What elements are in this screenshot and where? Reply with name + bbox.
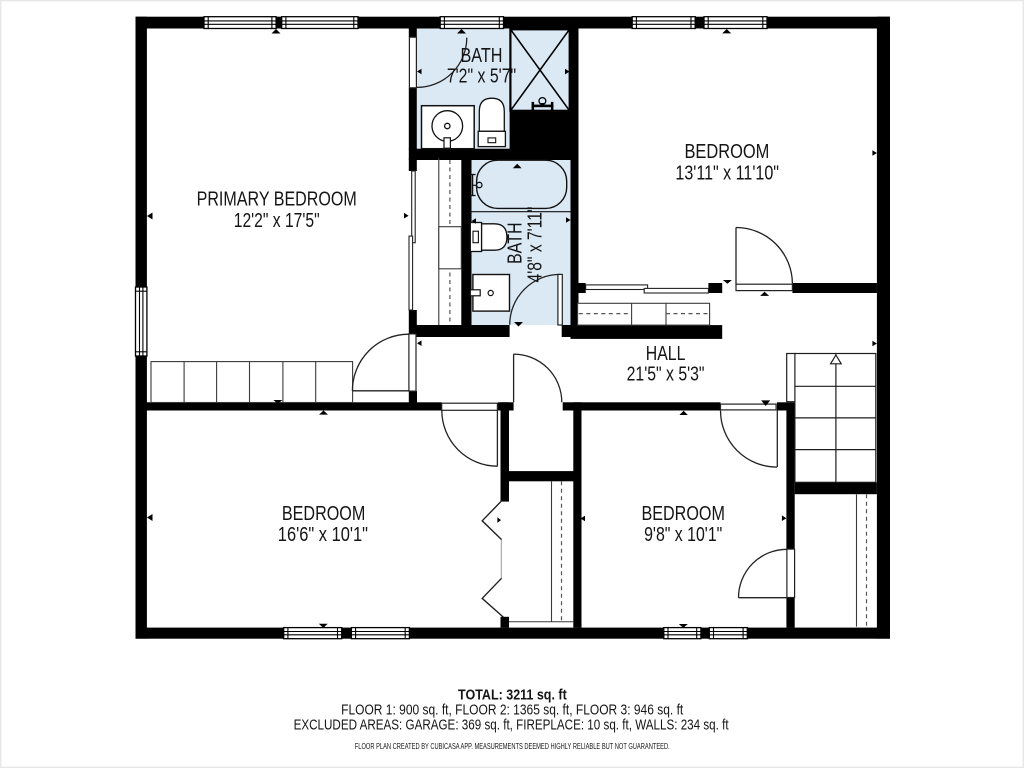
svg-text:BEDROOM: BEDROOM bbox=[282, 503, 365, 525]
svg-text:7'2" x 5'7": 7'2" x 5'7" bbox=[447, 65, 516, 87]
svg-text:BATH: BATH bbox=[504, 222, 526, 264]
svg-text:PRIMARY BEDROOM: PRIMARY BEDROOM bbox=[197, 188, 357, 210]
svg-text:12'2" x 17'5": 12'2" x 17'5" bbox=[234, 210, 320, 232]
svg-text:4'8" x 7'11": 4'8" x 7'11" bbox=[525, 207, 547, 283]
svg-text:BEDROOM: BEDROOM bbox=[684, 141, 769, 163]
svg-text:FLOOR PLAN CREATED BY CUBICASA: FLOOR PLAN CREATED BY CUBICASA APP. MEAS… bbox=[355, 742, 670, 751]
svg-text:BEDROOM: BEDROOM bbox=[642, 503, 725, 525]
svg-text:EXCLUDED AREAS: GARAGE: 369 sq: EXCLUDED AREAS: GARAGE: 369 sq. ft, FIRE… bbox=[294, 717, 729, 733]
svg-text:FLOOR 1: 900 sq. ft, FLOOR 2:: FLOOR 1: 900 sq. ft, FLOOR 2: 1365 sq. f… bbox=[341, 702, 683, 718]
svg-text:HALL: HALL bbox=[646, 343, 686, 365]
svg-text:21'5" x 5'3": 21'5" x 5'3" bbox=[627, 363, 705, 385]
svg-text:BATH: BATH bbox=[461, 45, 503, 67]
svg-text:TOTAL: 3211 sq. ft: TOTAL: 3211 sq. ft bbox=[458, 688, 567, 704]
svg-text:16'6" x 10'1": 16'6" x 10'1" bbox=[278, 524, 368, 546]
svg-text:9'8" x 10'1": 9'8" x 10'1" bbox=[644, 524, 722, 546]
svg-text:13'11" x 11'10": 13'11" x 11'10" bbox=[675, 162, 779, 184]
